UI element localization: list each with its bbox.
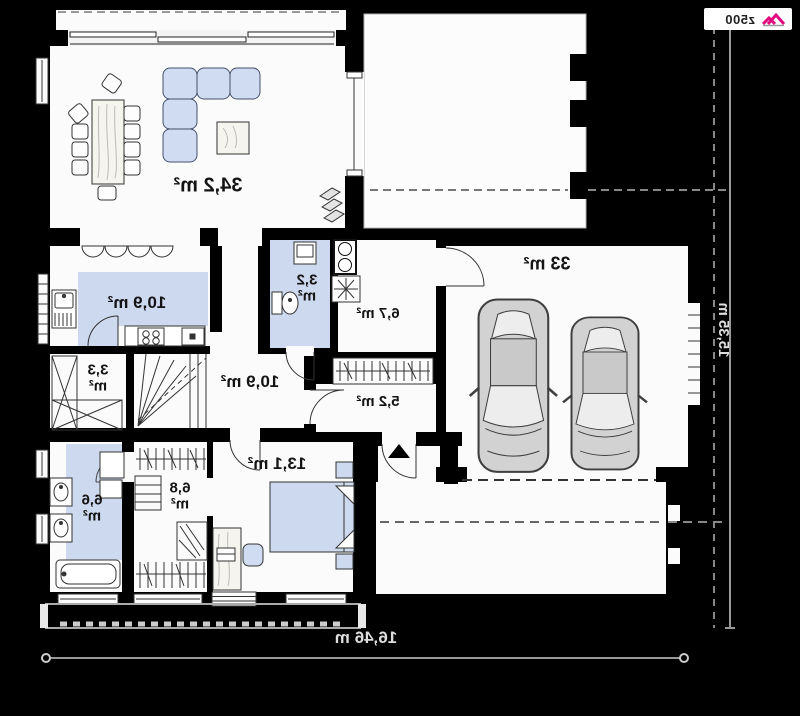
vestibule-area-label: 5,2 m² (356, 394, 399, 410)
utility-area-label: 6,7 m² (356, 306, 399, 322)
bathtub (56, 560, 120, 588)
bathroom-cabinets (100, 452, 124, 498)
floor-plan-page: 34,2 m² 10,9 m² 3,3 m² 6,6 m² 6,8 m² 13,… (0, 0, 800, 716)
bottom-terrace (40, 604, 366, 628)
hall-area-label: 10,9 m² (221, 373, 280, 391)
depth-dimension-label: 15,35 m (715, 302, 731, 357)
kitchen-sink-unit (52, 290, 76, 328)
living-room-area-label: 34,2 m² (174, 176, 243, 197)
wardrobe-area-label: 6,8 m² (160, 480, 200, 511)
bathroom-area-label: 6,6 m² (72, 492, 112, 523)
top-glass-wall (68, 30, 336, 46)
garage-window (688, 303, 700, 405)
kitchen-counter (125, 326, 205, 346)
bedroom-area-label: 13,1 m² (248, 455, 307, 473)
logo-roof-icon (760, 11, 786, 27)
boiler-icon (332, 276, 360, 302)
vestibule-closet (333, 358, 433, 384)
wc-area-label: 3,2 m² (287, 272, 327, 303)
garage-area-label: 33 m² (523, 255, 570, 274)
coffee-table (217, 122, 249, 154)
car-large (470, 300, 557, 472)
terrace-door (345, 72, 364, 176)
bed (270, 482, 354, 552)
car-small (563, 317, 647, 469)
desk (213, 528, 241, 590)
dining-table (92, 100, 124, 184)
pantry-area-label: 3,3 m² (78, 362, 118, 393)
washer-dryer (334, 240, 356, 274)
brand-logo-text: z500 (725, 12, 755, 27)
brand-logo: z500 (704, 8, 792, 30)
floor-plan-drawing (0, 0, 800, 716)
desk-chair (243, 544, 263, 566)
kitchen-area-label: 10,9 m² (108, 294, 167, 312)
width-dimension-label: 16,46 m (335, 629, 397, 647)
terrace-pillars (570, 54, 587, 199)
